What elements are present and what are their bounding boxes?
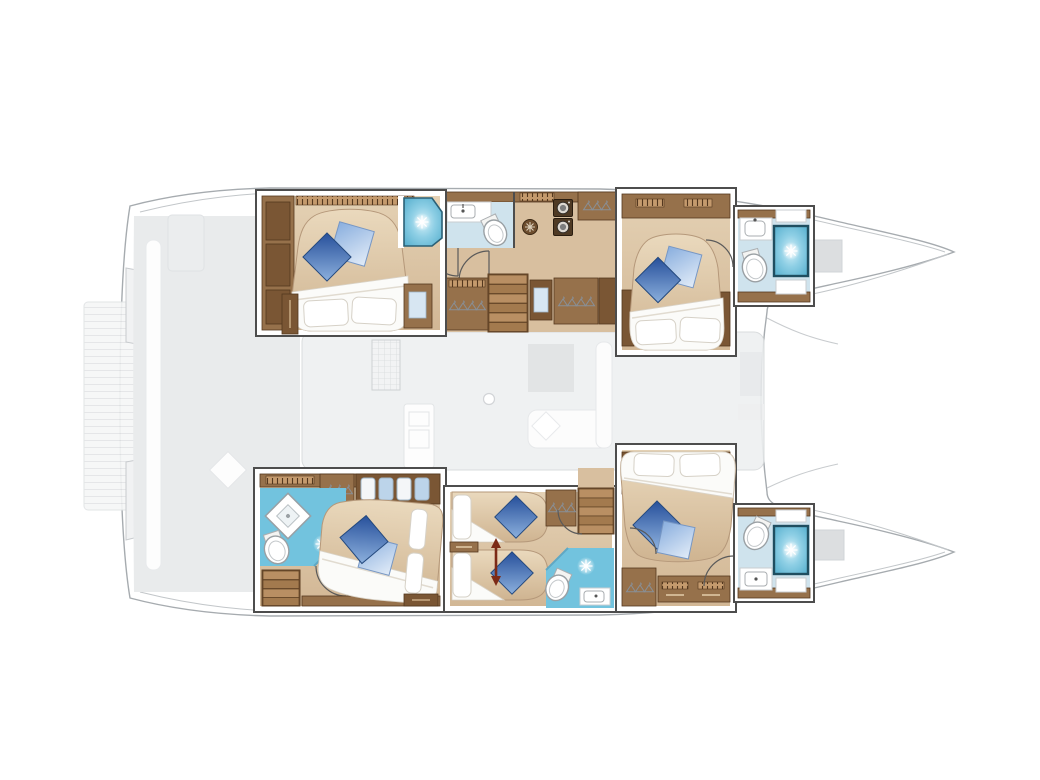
starboard-mid-cabin bbox=[444, 468, 618, 612]
starboard-aft-cabin bbox=[254, 468, 446, 612]
port-forward-cabin bbox=[616, 188, 736, 356]
chart-table bbox=[372, 340, 400, 390]
saloon-fwd-block2 bbox=[738, 404, 764, 420]
bed-pillow bbox=[408, 509, 427, 550]
island-bed bbox=[621, 452, 736, 562]
drawer-unit bbox=[450, 542, 478, 552]
floor-plan-canvas bbox=[0, 0, 1040, 780]
vent-strip bbox=[520, 193, 554, 201]
island-bed bbox=[316, 495, 444, 605]
port-companionway bbox=[430, 192, 616, 332]
vent-strip bbox=[266, 476, 314, 484]
bed-pillow bbox=[634, 453, 675, 476]
vent-rosette-icon bbox=[523, 220, 538, 235]
port-hull bbox=[256, 188, 814, 356]
starboard-forward-bathroom bbox=[734, 504, 814, 602]
bed-pillow bbox=[680, 453, 721, 476]
washer-dryer-icon bbox=[554, 200, 573, 217]
wardrobe-hanging bbox=[554, 278, 598, 324]
shower bbox=[774, 226, 808, 276]
bath-mat bbox=[776, 280, 806, 294]
stairs-icon bbox=[262, 570, 300, 606]
port-forward-bathroom bbox=[734, 206, 814, 306]
bed-pillow bbox=[303, 299, 348, 327]
foredeck-sunpad-top bbox=[812, 240, 842, 272]
shower-wall-gap bbox=[398, 196, 404, 248]
sink-icon bbox=[740, 568, 772, 590]
nightstand bbox=[404, 284, 432, 328]
island-bed bbox=[630, 234, 724, 350]
foredeck-line-bottom bbox=[767, 464, 838, 488]
sink-icon bbox=[451, 204, 475, 218]
nightstand bbox=[404, 594, 438, 606]
bed-pillow bbox=[405, 552, 424, 593]
drawer-bank bbox=[658, 576, 730, 602]
bed-pillow bbox=[351, 297, 396, 325]
shower-sparkle-icon bbox=[782, 541, 800, 559]
single-bed bbox=[452, 492, 548, 542]
hanging-locker bbox=[578, 192, 616, 220]
nightstand bbox=[282, 294, 298, 334]
vent-strip bbox=[636, 199, 664, 207]
shower-sparkle-icon bbox=[577, 557, 595, 575]
stair-landing bbox=[578, 468, 614, 488]
mast-step-icon bbox=[484, 394, 495, 405]
light-blue-cushion bbox=[657, 521, 695, 559]
shower-sparkle-icon bbox=[782, 242, 800, 260]
foredeck-line-top bbox=[767, 318, 838, 344]
washer-dryer-icon bbox=[554, 219, 573, 236]
bath-mat bbox=[776, 510, 806, 522]
foredeck-sunpad-bottom bbox=[814, 530, 844, 560]
cabinet-with-art bbox=[530, 280, 552, 320]
cabinet bbox=[599, 278, 616, 324]
starboard-forward-cabin bbox=[616, 444, 736, 612]
saloon-cabinet-block bbox=[528, 344, 574, 392]
cockpit-bench bbox=[146, 240, 161, 570]
shower-sparkle-icon bbox=[413, 213, 431, 231]
catamaran-floor-plan bbox=[0, 0, 1040, 780]
island-bed bbox=[292, 209, 409, 331]
saloon-fwd-block bbox=[740, 352, 762, 396]
stairs-icon bbox=[578, 468, 614, 534]
vent-strip bbox=[684, 199, 712, 207]
bed-pillow bbox=[453, 495, 471, 539]
vent-strip bbox=[296, 196, 414, 205]
bath-mat bbox=[776, 578, 806, 592]
port-aft-cabin bbox=[256, 190, 446, 336]
bed-pillow bbox=[679, 317, 720, 343]
bed-pillow bbox=[453, 553, 471, 597]
hanging-locker bbox=[622, 568, 656, 606]
cockpit-table bbox=[168, 215, 204, 271]
bed-pillow bbox=[635, 319, 676, 345]
shower bbox=[774, 526, 808, 574]
stairs-icon bbox=[488, 274, 528, 332]
sink-icon bbox=[580, 588, 610, 605]
saloon-sofa-back bbox=[596, 342, 612, 448]
bath-mat bbox=[776, 210, 806, 222]
shower bbox=[404, 198, 442, 246]
sink-icon bbox=[740, 218, 772, 240]
wardrobe-hanging bbox=[446, 278, 488, 330]
single-bed bbox=[452, 550, 548, 600]
